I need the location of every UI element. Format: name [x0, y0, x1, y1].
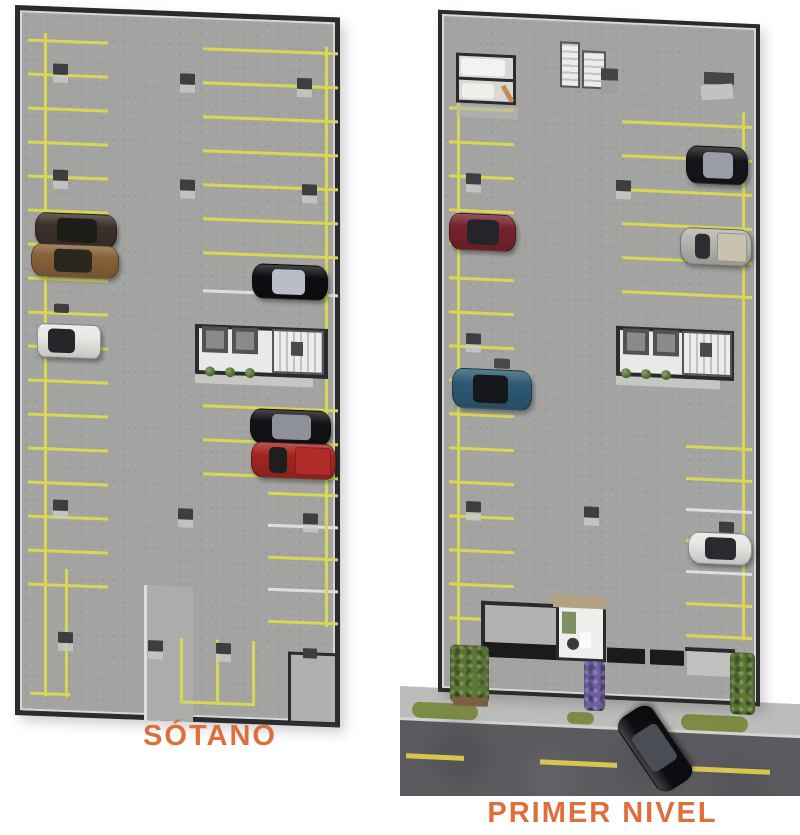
column [616, 180, 631, 192]
parking-line [203, 47, 338, 55]
elevator-car [657, 334, 675, 353]
ramp-edge [144, 585, 147, 720]
grass-strip [567, 712, 594, 725]
column [53, 499, 68, 511]
plant [661, 370, 671, 380]
page: SÓTANO PRIMER NIVEL [0, 0, 800, 835]
car-glass [57, 218, 97, 243]
car-glass [703, 151, 733, 179]
column [302, 184, 317, 196]
parking-line [28, 378, 108, 384]
column [180, 73, 195, 85]
plant [205, 366, 215, 376]
car-blue-sedan [452, 367, 532, 411]
street-scene [400, 0, 800, 796]
column [466, 501, 481, 513]
parking-line [28, 514, 108, 520]
car-maroon-suv [449, 212, 516, 252]
column-base [58, 643, 73, 652]
column [180, 179, 195, 191]
lobby-cabinet [562, 611, 576, 634]
elevator-car [206, 330, 224, 349]
sotano-floor-plan [15, 5, 340, 727]
car-glass [269, 447, 287, 473]
column [303, 648, 317, 659]
column [53, 63, 68, 75]
column-base [180, 190, 195, 199]
kiosk [601, 68, 618, 81]
car-glass [272, 269, 305, 295]
car-glass [467, 219, 500, 246]
wheel-stop [54, 303, 69, 313]
column-base [466, 184, 481, 193]
car-glass [705, 537, 736, 561]
parking-line [30, 692, 70, 697]
parking-line [180, 638, 183, 700]
planter-bush [450, 644, 489, 704]
elevator-car [627, 332, 645, 351]
plant [245, 368, 255, 378]
plant [225, 367, 235, 377]
planter-soil [453, 696, 488, 707]
column-base [302, 195, 317, 204]
column [178, 508, 193, 520]
car-glass [48, 328, 75, 353]
column-base [53, 510, 68, 519]
parking-line [28, 582, 108, 588]
roof-ramp [700, 83, 733, 100]
parking-line [28, 446, 108, 452]
parking-line [203, 217, 338, 225]
parking-line [203, 251, 338, 259]
parking-line [622, 120, 752, 129]
car-white-van [37, 323, 101, 359]
parking-line [28, 480, 108, 486]
column-base [297, 89, 312, 98]
column-base [53, 180, 68, 189]
lobby-table [567, 638, 579, 651]
column [148, 640, 163, 652]
parking-line [203, 183, 338, 191]
column [584, 506, 599, 518]
parking-line [203, 81, 338, 89]
parking-line [622, 188, 752, 197]
column-base [178, 519, 193, 528]
column-base [616, 191, 631, 200]
room-sofa [461, 58, 505, 77]
parking-line [28, 174, 108, 180]
entry-ramp [687, 651, 733, 677]
parking-line [28, 140, 108, 146]
car-black-suv [686, 145, 748, 186]
column [216, 643, 231, 655]
parking-line [622, 290, 752, 299]
column [53, 169, 68, 181]
column-base [303, 524, 318, 533]
car-bed [717, 233, 747, 263]
parking-line [203, 149, 338, 157]
car-glass [695, 233, 710, 260]
car-black-suv [250, 408, 331, 446]
column-base [53, 74, 68, 83]
column-base [180, 84, 195, 93]
entry-awning [607, 647, 645, 664]
car-bed [295, 447, 331, 476]
column [303, 513, 318, 525]
column-base [466, 344, 481, 353]
planter-bush [730, 652, 755, 715]
column [466, 333, 481, 345]
sotano-label: SÓTANO [95, 720, 325, 753]
plant [641, 369, 651, 379]
column-base [466, 512, 481, 521]
parking-line [44, 33, 47, 696]
column-base [584, 517, 599, 526]
parking-line [252, 641, 255, 703]
car-silver-pickup [680, 227, 752, 267]
primer-nivel-floor-plan [438, 10, 760, 707]
column [297, 78, 312, 90]
car-glass [272, 414, 312, 440]
car-bronze-sedan [31, 243, 119, 279]
column [719, 521, 734, 533]
primer-nivel-panel [400, 0, 800, 796]
parking-line [28, 72, 108, 78]
parking-line [28, 106, 108, 112]
entry-stairs [560, 41, 580, 88]
column [58, 632, 73, 644]
car-glass [54, 249, 92, 273]
lobby-header [553, 594, 606, 609]
ramp-enclosure [288, 651, 338, 725]
primer-nivel-label: PRIMER NIVEL [455, 797, 750, 830]
car-red-pickup [251, 441, 336, 480]
entry-awning [483, 642, 565, 661]
elevator-car [236, 331, 254, 350]
car-black-sedan [252, 263, 328, 301]
car-white-suv [688, 531, 752, 566]
column-base [216, 654, 231, 663]
entry-awning [650, 649, 684, 666]
room-bed [462, 83, 494, 99]
car-glass [473, 374, 507, 404]
stair-well [700, 343, 712, 358]
wheel-stop [494, 358, 510, 369]
stair-well [291, 342, 303, 356]
plant [621, 368, 631, 378]
parking-line [28, 548, 108, 554]
parking-line [203, 115, 338, 123]
parking-line [28, 412, 108, 418]
kiosk-base [601, 80, 618, 94]
lobby-desk [580, 632, 591, 648]
parking-line [28, 38, 108, 44]
room-shadow [456, 105, 518, 120]
column [466, 173, 481, 185]
planter-flowers [584, 660, 605, 711]
column-base [148, 651, 163, 660]
